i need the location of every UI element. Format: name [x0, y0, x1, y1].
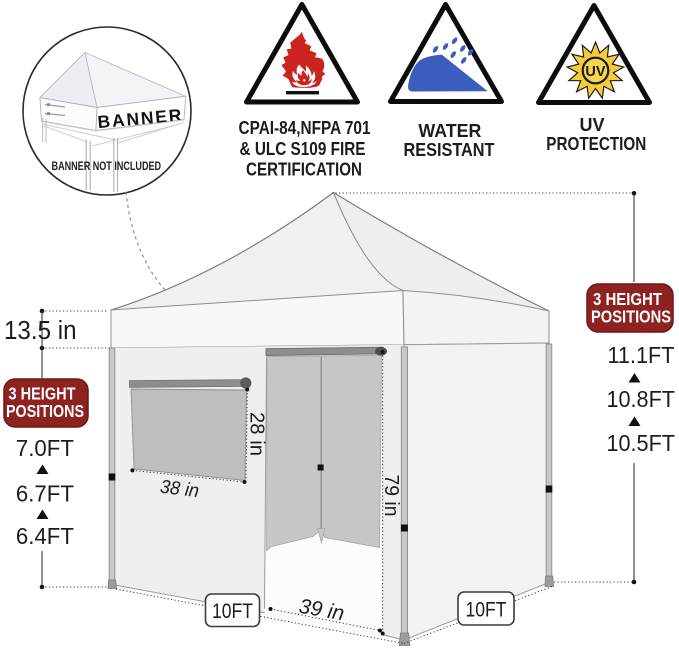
- svg-text:10.8FT: 10.8FT: [607, 386, 676, 412]
- svg-text:PROTECTION: PROTECTION: [546, 134, 646, 154]
- svg-text:13.5 in: 13.5 in: [4, 317, 77, 345]
- svg-text:CPAI-84,NFPA 701: CPAI-84,NFPA 701: [239, 118, 371, 138]
- svg-text:11.1FT: 11.1FT: [608, 342, 675, 368]
- svg-text:& ULC S109 FIRE: & ULC S109 FIRE: [240, 139, 366, 159]
- svg-text:RESISTANT: RESISTANT: [404, 140, 495, 160]
- svg-text:79 in: 79 in: [380, 475, 402, 517]
- svg-text:10FT: 10FT: [212, 599, 253, 623]
- svg-text:UV: UV: [585, 64, 605, 80]
- svg-text:WATER: WATER: [418, 121, 481, 141]
- svg-text:UV: UV: [579, 115, 604, 135]
- svg-text:10.5FT: 10.5FT: [607, 430, 676, 456]
- svg-text:CERTIFICATION: CERTIFICATION: [246, 159, 362, 179]
- svg-text:10FT: 10FT: [466, 598, 507, 622]
- svg-text:7.0FT: 7.0FT: [16, 435, 74, 461]
- svg-text:28 in: 28 in: [246, 412, 268, 456]
- svg-text:BANNER NOT INCLUDED: BANNER NOT INCLUDED: [52, 159, 162, 173]
- svg-text:6.7FT: 6.7FT: [16, 481, 74, 507]
- svg-text:6.4FT: 6.4FT: [16, 523, 74, 549]
- svg-text:POSITIONS: POSITIONS: [6, 401, 84, 421]
- svg-text:POSITIONS: POSITIONS: [591, 307, 671, 327]
